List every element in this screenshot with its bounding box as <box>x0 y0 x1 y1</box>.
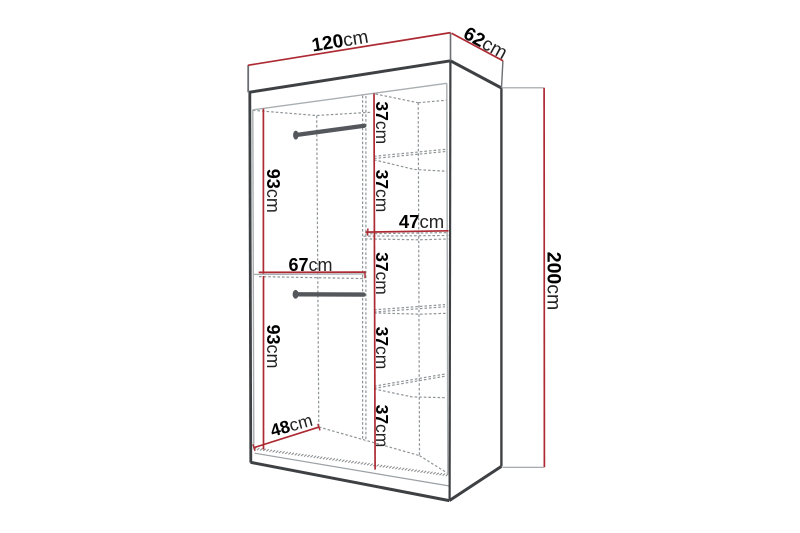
svg-text:37cm: 37cm <box>372 101 392 144</box>
svg-text:37cm: 37cm <box>372 405 392 448</box>
svg-text:200cm: 200cm <box>543 252 565 311</box>
svg-text:93cm: 93cm <box>263 324 283 368</box>
svg-text:37cm: 37cm <box>372 327 392 370</box>
svg-text:67cm: 67cm <box>288 255 332 275</box>
svg-text:47cm: 47cm <box>399 211 444 232</box>
svg-text:93cm: 93cm <box>263 169 283 213</box>
svg-text:37cm: 37cm <box>372 252 392 295</box>
svg-text:37cm: 37cm <box>372 170 392 213</box>
